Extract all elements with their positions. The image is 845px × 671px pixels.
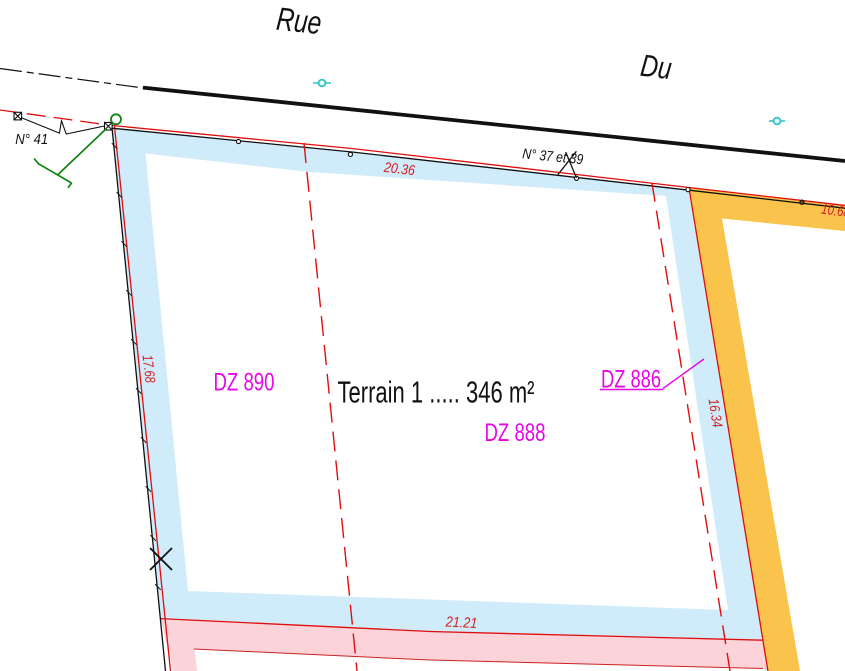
svg-text:DZ 890: DZ 890 <box>214 368 275 396</box>
svg-text:21.21: 21.21 <box>444 614 477 632</box>
svg-text:DZ 888: DZ 888 <box>485 419 546 447</box>
svg-text:Terrain 1 ..... 346 m²: Terrain 1 ..... 346 m² <box>338 374 535 409</box>
svg-text:Du: Du <box>639 48 674 87</box>
svg-text:17.68: 17.68 <box>139 354 158 384</box>
svg-text:N° 41: N° 41 <box>15 131 48 148</box>
svg-text:Rue: Rue <box>275 1 324 42</box>
